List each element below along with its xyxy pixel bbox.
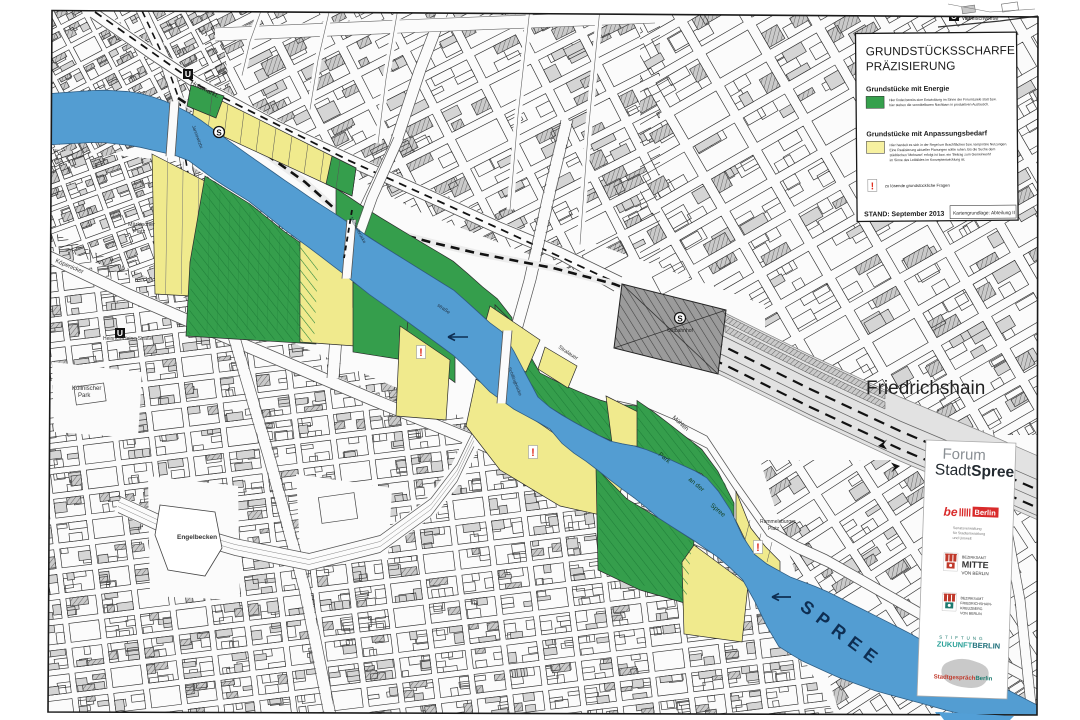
svg-text:Grundstücke mit Energie: Grundstücke mit Energie — [866, 86, 949, 94]
svg-text:StadtSpree: StadtSpree — [935, 461, 1015, 481]
svg-text:Platz: Platz — [133, 229, 145, 235]
svg-text:Rummelsburger: Rummelsburger — [760, 519, 796, 525]
svg-text:GRUNDSTÜCKSSCHARFE: GRUNDSTÜCKSSCHARFE — [866, 43, 1015, 58]
svg-text:!: ! — [531, 447, 535, 459]
svg-text:Heinrich-Heine-Straße: Heinrich-Heine-Straße — [103, 336, 153, 342]
svg-text:Kartengrundlage: Abteilung II: Kartengrundlage: Abteilung II — [953, 210, 1015, 217]
svg-text:BEZIRKSAMT: BEZIRKSAMT — [960, 596, 984, 601]
svg-text:und Umwelt: und Umwelt — [953, 536, 972, 541]
svg-text:!: ! — [756, 542, 760, 554]
svg-text:VON BERLIN: VON BERLIN — [961, 570, 988, 576]
svg-text:PRÄZISIERUNG: PRÄZISIERUNG — [866, 59, 956, 74]
svg-text:Park: Park — [78, 393, 91, 399]
svg-text:STAND: September 2013: STAND: September 2013 — [864, 211, 945, 219]
svg-text:Friedrichshain: Friedrichshain — [866, 378, 985, 399]
svg-text:KREUZBERG: KREUZBERG — [960, 606, 983, 611]
svg-text:!: ! — [419, 347, 423, 359]
svg-text:U: U — [185, 69, 191, 79]
svg-text:VON BERLIN: VON BERLIN — [960, 611, 982, 616]
svg-text:be: be — [943, 505, 958, 519]
svg-text:Köllnischer: Köllnischer — [72, 386, 101, 392]
svg-text:Platz: Platz — [768, 526, 780, 532]
svg-text:zu lösende grundstückliche Fra: zu lösende grundstückliche Fragen — [885, 183, 951, 189]
svg-text:Engelbecken: Engelbecken — [177, 534, 217, 541]
svg-text:S: S — [216, 129, 222, 138]
svg-text:Märkischer: Märkischer — [128, 222, 155, 228]
svg-text:!: ! — [871, 181, 874, 192]
svg-text:im Sinne des Leitbildes im Kon: im Sinne des Leitbildes im Konzeptentwic… — [890, 158, 966, 163]
svg-text:Berlin: Berlin — [974, 508, 996, 518]
svg-text:MITTE: MITTE — [962, 559, 989, 570]
svg-text:Grundstücke mit Anpassungsbeda: Grundstücke mit Anpassungsbedarf — [866, 130, 987, 138]
